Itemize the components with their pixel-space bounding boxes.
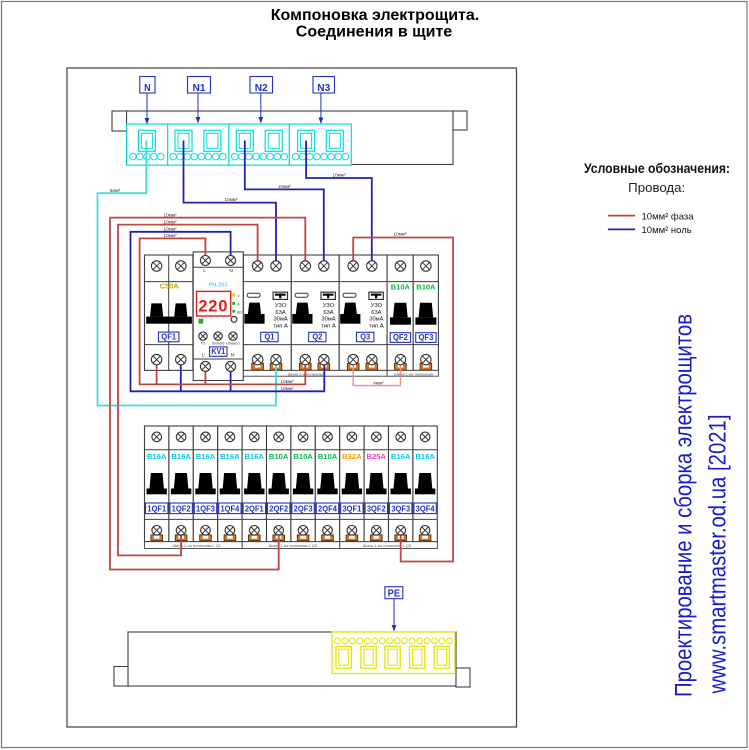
- svg-text:Соединения в щите: Соединения в щите: [296, 24, 453, 41]
- svg-text:2QF1: 2QF1: [245, 503, 264, 513]
- svg-text:63А: 63А: [323, 310, 333, 316]
- svg-text:L': L': [202, 353, 206, 358]
- svg-text:B16A: B16A: [171, 452, 191, 461]
- svg-text:РН-263: РН-263: [209, 282, 228, 288]
- svg-text:N2: N2: [255, 82, 268, 94]
- svg-text:Umax(V): Umax(V): [226, 342, 239, 346]
- svg-text:10мм²: 10мм²: [333, 173, 346, 178]
- svg-text:Проектирование и сборка электр: Проектирование и сборка электрощитов: [671, 314, 698, 697]
- svg-text:63А: 63А: [275, 310, 285, 316]
- svg-text:63А: 63А: [371, 310, 381, 316]
- svg-text:B10A: B10A: [416, 282, 436, 291]
- svg-text:1QF1: 1QF1: [147, 503, 166, 513]
- svg-text:10мм² ноль: 10мм² ноль: [642, 225, 692, 236]
- svg-text:30мА: 30мА: [369, 317, 383, 323]
- svg-text:B16A: B16A: [415, 452, 435, 461]
- svg-text:1QF4: 1QF4: [220, 503, 239, 513]
- svg-text:1QF2: 1QF2: [172, 503, 191, 513]
- svg-text:УЗО: УЗО: [275, 303, 287, 309]
- svg-text:тип А: тип А: [273, 323, 288, 329]
- svg-text:1QF3: 1QF3: [196, 503, 215, 513]
- svg-text:2QF3: 2QF3: [294, 503, 313, 513]
- svg-text:220: 220: [198, 298, 228, 316]
- svg-text:Провода:: Провода:: [628, 181, 685, 195]
- svg-text:C50A: C50A: [160, 281, 180, 290]
- svg-text:B16A: B16A: [220, 452, 240, 461]
- svg-text:10мм²: 10мм²: [164, 227, 177, 232]
- svg-text:N: N: [229, 268, 233, 274]
- svg-text:QF2: QF2: [393, 333, 408, 342]
- svg-text:тип А: тип А: [321, 323, 336, 329]
- svg-text:QF1: QF1: [161, 333, 176, 342]
- svg-text:N1: N1: [193, 82, 206, 94]
- svg-text:УЗО: УЗО: [323, 303, 335, 309]
- svg-text:Компоновка электрощита.: Компоновка электрощита.: [271, 7, 479, 24]
- svg-text:B16A: B16A: [147, 452, 167, 461]
- svg-text:тип А: тип А: [369, 323, 384, 329]
- svg-text:B16A: B16A: [391, 452, 411, 461]
- svg-text:PE: PE: [388, 589, 401, 600]
- svg-text:B10A: B10A: [293, 452, 313, 461]
- svg-text:3QF4: 3QF4: [416, 503, 435, 513]
- svg-text:B10A: B10A: [318, 452, 338, 461]
- svg-text:Q3: Q3: [360, 333, 370, 342]
- svg-text:N3: N3: [317, 82, 330, 94]
- svg-text:Umin(V): Umin(V): [212, 342, 224, 346]
- svg-text:Q2: Q2: [312, 333, 322, 342]
- svg-text:10мм²: 10мм²: [225, 197, 238, 202]
- svg-text:3QF3: 3QF3: [391, 503, 410, 513]
- svg-text:2QF2: 2QF2: [269, 503, 288, 513]
- svg-text:3QF1: 3QF1: [342, 503, 361, 513]
- svg-text:QF3: QF3: [418, 333, 433, 342]
- svg-text:30мА: 30мА: [321, 317, 335, 323]
- svg-text:Шина 1-но полюсная L Q1: Шина 1-но полюсная L Q1: [172, 543, 221, 548]
- svg-text:10мм²: 10мм²: [164, 219, 177, 224]
- svg-text:3QF2: 3QF2: [367, 503, 386, 513]
- svg-text:N: N: [144, 82, 151, 94]
- svg-text:6мм²: 6мм²: [110, 188, 121, 193]
- svg-text:N': N': [231, 353, 235, 358]
- svg-text:10мм²: 10мм²: [281, 379, 294, 384]
- svg-text:B16A: B16A: [245, 452, 265, 461]
- svg-text:ТО: ТО: [201, 342, 206, 346]
- svg-text:10мм²: 10мм²: [394, 231, 407, 236]
- svg-text:4мм²: 4мм²: [373, 380, 384, 385]
- svg-text:B25A: B25A: [367, 452, 387, 461]
- svg-text:www.smartmaster.od.ua [2021]: www.smartmaster.od.ua [2021]: [705, 415, 732, 695]
- svg-text:10мм²: 10мм²: [281, 386, 294, 391]
- svg-text:B10A: B10A: [391, 282, 411, 291]
- svg-text:B10A: B10A: [269, 452, 289, 461]
- svg-text:30мА: 30мА: [273, 317, 287, 323]
- svg-text:L: L: [203, 268, 206, 274]
- svg-text:10мм²: 10мм²: [164, 233, 177, 238]
- svg-text:Шина 1-но полюсная L Q2: Шина 1-но полюсная L Q2: [269, 543, 318, 548]
- svg-text:кВт: кВт: [237, 310, 242, 314]
- svg-text:Условные обозначения:: Условные обозначения:: [584, 161, 730, 176]
- svg-text:2QF4: 2QF4: [318, 503, 337, 513]
- svg-text:10мм² фаза: 10мм² фаза: [642, 211, 695, 222]
- svg-text:Шина 1-но полюсная L Q3: Шина 1-но полюсная L Q3: [363, 543, 412, 548]
- svg-text:10мм²: 10мм²: [278, 184, 291, 189]
- svg-text:KV1: KV1: [211, 347, 225, 356]
- svg-text:УЗО: УЗО: [371, 303, 383, 309]
- svg-text:B32A: B32A: [342, 452, 362, 461]
- svg-text:Q1: Q1: [264, 333, 274, 342]
- svg-text:B16A: B16A: [196, 452, 216, 461]
- svg-text:10мм²: 10мм²: [164, 212, 177, 217]
